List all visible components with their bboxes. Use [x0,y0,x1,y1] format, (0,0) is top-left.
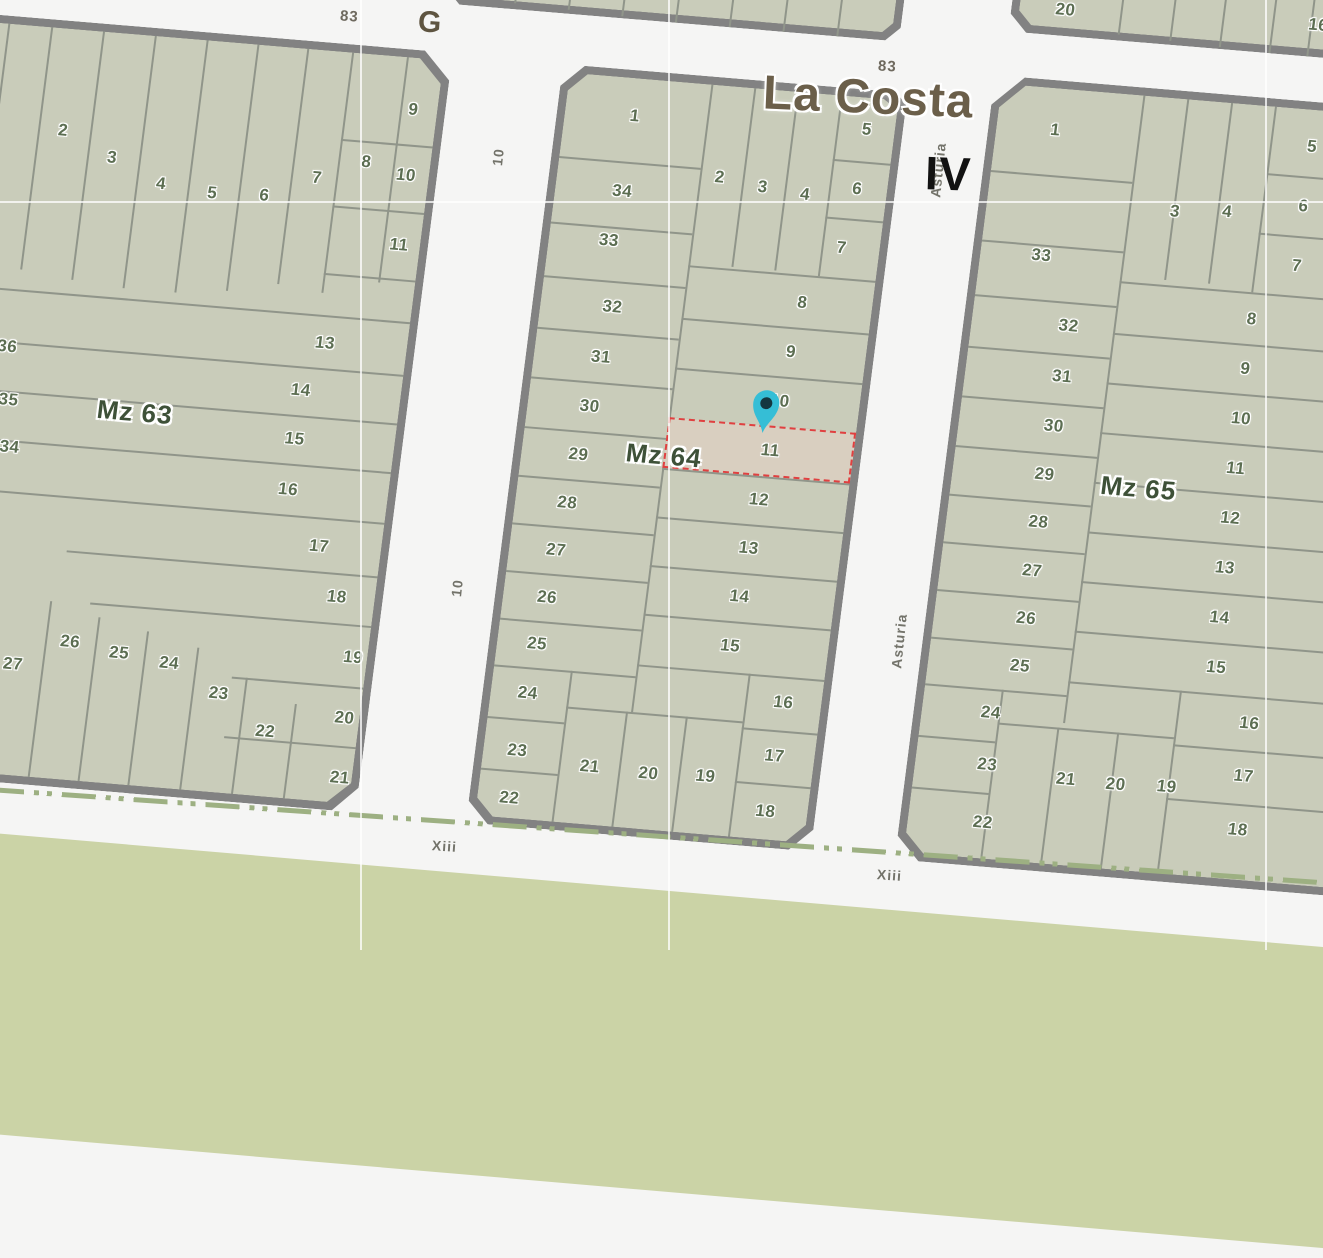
parcel-number-label: 30 [1043,415,1065,437]
street-10-label-lower: 10 [444,542,469,633]
parcel-number-label: 14 [728,586,750,608]
parcel-number-label: 16 [1238,713,1260,735]
street-xiii-label-left: Xiii [0,792,2,810]
graticule-vertical-1 [360,0,362,950]
parcel-number-label: 15 [719,635,741,657]
parcel-number-label: 11 [760,440,781,461]
parcel-number-label: 27 [1021,560,1043,582]
parcel-number-label: 13 [314,332,336,354]
parcel-number-label: 26 [59,631,81,653]
parcel-number-label: 11 [1225,458,1246,479]
parcel-number-label: 24 [980,702,1002,724]
parcel-number-label: 22 [498,787,520,809]
parcel-number-label: 24 [517,682,539,704]
parcel-number-label: 34 [611,181,633,203]
place-name-label: La Costa [762,65,975,129]
parcel-number-label: 16 [772,692,794,714]
parcel-number-label: 23 [506,740,528,762]
parcel-number-label: 13 [1214,557,1236,579]
parcel-number-label: 36 [0,336,18,358]
parcel-number-label: 20 [1054,0,1076,21]
parcel-number-label: 21 [329,767,351,789]
street-xiii-label-mid: Xiii [431,837,457,855]
parcel-number-label: 33 [598,230,620,252]
parcel-number-label: 27 [2,653,24,675]
map-pin-icon[interactable] [745,387,785,436]
sector-iv-label: IV [924,145,972,202]
parcel-number-label: 25 [1009,655,1031,677]
street-g-label: G [417,5,443,41]
block-top-middle[interactable] [446,0,908,42]
parcel-number-label: 20 [1104,774,1126,796]
street-asturia-label-main: Asturia [886,595,911,686]
block-label-mz64: Mz 64 [624,437,703,474]
street-10-label-upper: 10 [485,111,510,202]
parcel-number-label: 22 [254,721,276,743]
parcel-number-label: 26 [1015,608,1037,630]
parcel-number-label: 29 [1033,464,1055,486]
parcel-number-label: 18 [326,586,348,608]
parcel-number-label: 22 [972,812,994,834]
parcel-number-label: 12 [748,489,770,511]
block-label-mz63: Mz 63 [95,394,174,431]
map-page: { "map": { "place_label": "La Costa", "s… [0,0,1323,950]
parcel-number-label: 25 [526,633,548,655]
parcel-number-label: 15 [1205,657,1227,679]
parcel-number-label: 29 [567,444,589,466]
parcel-number-label: 35 [0,389,20,411]
parcel-number-label: 31 [1051,366,1073,388]
parcel-number-label: 26 [536,587,558,609]
parcel-number-label: 32 [601,296,623,318]
parcel-number-label: 30 [578,396,600,418]
parcel-number-label: 16 [1307,14,1323,36]
block-top-right[interactable]: 2016 [1008,0,1323,72]
street-xiii-label-right: Xiii [876,866,902,884]
block-mz64[interactable]: 1343332313029282726252423222345678910111… [466,64,908,851]
parcel-number-label: 28 [1027,511,1049,533]
graticule-vertical-3 [1265,0,1267,950]
parcel-number-label: 13 [738,537,760,559]
parcel-number-label: 14 [1208,607,1230,629]
parcel-number-label: 18 [1227,819,1249,841]
parcel-number-label: 31 [590,346,612,368]
parcel-number-label: 10 [1230,408,1252,430]
parcel-number-label: 32 [1057,315,1079,337]
parcel-number-label: 24 [158,653,180,675]
map-canvas[interactable]: 2345678910111314151617181920212223242526… [0,0,1323,950]
parcel-number-label: 14 [290,380,312,402]
parcel-number-label: 23 [976,754,998,776]
parcel-number-label: 11 [388,234,409,255]
parcel-number-label: 12 [1219,507,1241,529]
green-field-area [0,831,1323,1258]
graticule-vertical-2 [668,0,670,950]
parcel-number-label: 18 [754,801,776,823]
parcel-number-label: 20 [333,707,355,729]
graticule-horizontal-1 [0,201,1323,203]
parcel-number-label: 27 [545,539,567,561]
parcel-number-label: 21 [1055,769,1077,791]
parcel-number-label: 17 [308,536,330,558]
block-label-mz65: Mz 65 [1099,470,1178,507]
parcel-number-label: 33 [1030,245,1052,267]
parcel-number-label: 19 [694,766,716,788]
block-mz63[interactable]: 2345678910111314151617181920212223242526… [0,1,453,812]
parcel-number-label: 17 [763,745,785,767]
parcel-number-label: 19 [1155,776,1177,798]
parcel-number-label: 21 [579,756,601,778]
parcel-number-label: 20 [637,763,659,785]
parcel-number-label: 23 [207,683,229,705]
parcel-number-label: 25 [108,642,130,664]
parcel-number-label: 15 [283,428,305,450]
parcel-number-label: 17 [1232,765,1254,787]
parcel-number-label: 16 [277,479,299,501]
parcel-number-label: 28 [556,492,578,514]
parcel-number-label: 10 [395,165,417,187]
route-83-label-left: 83 [339,7,359,25]
parcel-number-label: 34 [0,436,21,458]
